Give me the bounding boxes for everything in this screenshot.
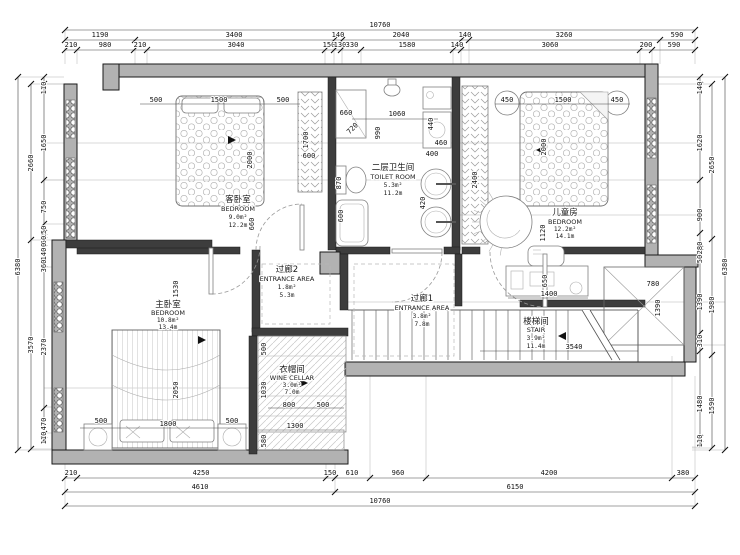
dim-text: 2660: [27, 155, 35, 172]
dim-text: 1400: [541, 290, 558, 298]
dim-text: 200: [640, 41, 653, 49]
dim-text: 750: [40, 201, 48, 214]
room-perimeter: 11.2m: [384, 190, 403, 197]
dim-text: 2040: [393, 31, 410, 39]
room-name-en: STAIR: [527, 326, 546, 334]
floor-plan-canvas: 10760 1190 3400 140 2040 140 3260 590 21…: [0, 0, 740, 555]
dim-text: 10760: [369, 497, 390, 505]
dim-text: 2000: [540, 139, 548, 156]
dim-text: 1390: [654, 300, 662, 317]
dim-text: 590: [671, 31, 684, 39]
dim-text: 50: [696, 255, 704, 263]
dim-text: 330: [346, 41, 359, 49]
staircase: [352, 310, 620, 360]
dim-text: 1580: [399, 41, 416, 49]
wall-kids-bottom: [520, 300, 645, 307]
pillow: [120, 420, 164, 442]
room-area: 3.9m²: [527, 335, 546, 342]
dim-text: 2650: [708, 157, 716, 174]
dim-text: 660: [248, 218, 256, 231]
dim-text: 130: [334, 41, 347, 49]
room-label-hall2: 过廊2 ENTRANCE AREA 1.8m² 5.3m: [260, 264, 315, 299]
dim-text: 500: [317, 401, 330, 409]
window-left-1: [66, 100, 75, 138]
room-label-master: 主卧室 BEDROOM 10.8m² 13.4m: [151, 299, 185, 331]
dim-text: 1700: [302, 132, 310, 149]
cabinet: [423, 87, 451, 109]
dim-text: 960: [392, 469, 405, 477]
dim-text: 110: [696, 435, 704, 448]
dim-text: 140: [40, 248, 48, 261]
dim-text: 4200: [541, 469, 558, 477]
room-name-en: WINE CELLAR: [270, 374, 315, 382]
dim-text: 590: [668, 41, 681, 49]
dim-text: 500: [150, 96, 163, 104]
bed: [520, 92, 608, 206]
dim-text: 660: [340, 109, 353, 117]
dim-text: 6150: [507, 483, 524, 491]
stair-direction-arrow: [558, 332, 566, 340]
wall-top: [118, 64, 658, 77]
dim-text: 3260: [556, 31, 573, 39]
dim-text: 210: [65, 41, 78, 49]
dim-text: 580: [260, 435, 268, 448]
window-right-2: [647, 185, 656, 243]
wall-guest-toilet: [328, 77, 336, 250]
dim-text: 420: [419, 197, 427, 210]
wall-bottom-right: [345, 362, 685, 376]
room-perimeter: 7.0m: [285, 389, 300, 396]
door-arc-guest: [256, 204, 302, 250]
room-name-en: BEDROOM: [221, 205, 255, 213]
dim-text: 500: [277, 96, 290, 104]
room-label-stair: 楼梯间 STAIR 3.9m² 11.4m: [523, 316, 549, 350]
dim-text: 1500: [211, 96, 228, 104]
dim-text: 500: [95, 417, 108, 425]
dim-text: 3400: [226, 31, 243, 39]
dim-text: 2370: [40, 339, 48, 356]
dim-text: 6380: [14, 259, 22, 276]
dim-text: 1500: [555, 96, 572, 104]
dim-text: 150: [324, 469, 337, 477]
dim-text: 600: [337, 210, 345, 223]
dim-text: 280: [696, 242, 704, 255]
dim-text: 3040: [228, 41, 245, 49]
dim-text: 400: [426, 150, 439, 158]
wall-master-top: [66, 240, 212, 248]
dim-text: 1800: [160, 420, 177, 428]
wall-corridor-toilet-b: [444, 247, 460, 254]
room-area: 10.8m²: [157, 317, 179, 324]
round-chair: [480, 196, 532, 248]
dim-text: 460: [435, 139, 448, 147]
room-perimeter: 5.3m: [280, 292, 295, 299]
wall-cloak-top: [252, 328, 348, 336]
door-leaf-toilet: [392, 249, 442, 253]
dim-text: 800: [283, 401, 296, 409]
dimensions-bottom: 210 4250 150 610 960 4200 380 4610 6150 …: [65, 469, 690, 505]
room-name-en: ENTRANCE AREA: [395, 304, 450, 312]
room-name-cn: 过廊2: [276, 264, 298, 275]
dim-text: 210: [134, 41, 147, 49]
window-left-3: [54, 282, 63, 332]
room-name-en: TOILET ROOM: [369, 173, 415, 181]
wall-master-cloak: [249, 336, 257, 454]
wall-hall1-left: [340, 254, 348, 310]
door-leaf-guest: [300, 205, 304, 250]
cloakroom-furniture: [258, 336, 346, 450]
room-area: 5.3m²: [384, 182, 403, 189]
dim-text: 900: [696, 209, 704, 222]
wall-hall1-right: [455, 254, 462, 306]
dim-text: 470: [40, 418, 48, 431]
wall-bottom-left: [52, 450, 348, 464]
room-name-cn: 儿童房: [552, 207, 578, 218]
window-right-1: [647, 98, 656, 158]
wall-shaft-right: [684, 267, 696, 362]
dim-text: 360: [40, 260, 48, 273]
dim-text: 140: [451, 41, 464, 49]
dim-text: 1980: [708, 297, 716, 314]
column-hall: [320, 252, 340, 274]
wall-corridor-kids-a: [462, 247, 480, 254]
room-area: 3.8m²: [413, 313, 432, 320]
room-perimeter: 14.1m: [556, 233, 575, 240]
room-name-cn: 二层卫生间: [372, 162, 415, 173]
room-area: 9.0m²: [229, 214, 248, 221]
room-name-en: BEDROOM: [548, 218, 582, 226]
guest-bedroom-furniture: [176, 92, 322, 206]
dim-text: 500: [260, 343, 268, 356]
room-name-cn: 过廊1: [411, 293, 433, 304]
room-name-en: ENTRANCE AREA: [260, 275, 315, 283]
room-name-cn: 客卧室: [225, 194, 251, 205]
dim-text: 1530: [172, 281, 180, 298]
room-label-kids: 儿童房 BEDROOM 12.2m² 14.1m: [548, 207, 582, 240]
dim-text: 10760: [369, 21, 390, 29]
dimensions-right: 6380 2650 1980 1590 140 1620 900 280 50 …: [696, 82, 729, 448]
dim-text: 2000: [246, 152, 254, 169]
wall-hall2-master: [252, 250, 260, 332]
dim-text: 140: [332, 31, 345, 39]
dim-text: 1120: [539, 225, 547, 242]
dim-text: 610: [346, 469, 359, 477]
low-cabinet: [258, 430, 344, 450]
dim-text: 140: [696, 82, 704, 95]
dim-text: 650: [541, 275, 549, 288]
pillow: [224, 98, 260, 113]
dim-text: 780: [647, 280, 660, 288]
dim-text: 1060: [389, 110, 406, 118]
room-perimeter: 12.2m: [229, 222, 248, 229]
wall-toilet-kids: [452, 77, 460, 250]
window-left-2: [66, 158, 75, 238]
room-area: 12.2m²: [554, 226, 576, 233]
dim-text: 3540: [566, 343, 583, 351]
dim-text: 440: [427, 118, 435, 131]
dim-text: 110: [40, 432, 48, 445]
room-area: 3.0m²: [283, 382, 302, 389]
wash-basin: [384, 84, 400, 96]
wall-corridor-toilet-a: [336, 247, 390, 254]
dim-text: 450: [611, 96, 624, 104]
dim-text: 600: [303, 152, 316, 160]
room-label-toilet: 二层卫生间 TOILET ROOM 5.3m² 11.2m: [369, 162, 415, 197]
dim-text: 1620: [696, 135, 704, 152]
dim-text: 450: [501, 96, 514, 104]
room-label-hall1: 过廊1 ENTRANCE AREA 3.8m² 7.8m: [395, 293, 450, 328]
dim-text: 500: [226, 417, 239, 425]
dim-text: 110: [40, 82, 48, 95]
dim-text: 4610: [192, 483, 209, 491]
pillow: [170, 420, 214, 442]
dim-text: 870: [335, 177, 343, 190]
dim-text: 1190: [92, 31, 109, 39]
door-leaf-master: [209, 248, 213, 294]
dimensions-top: 10760 1190 3400 140 2040 140 3260 590 21…: [65, 21, 684, 49]
dim-text: 3060: [542, 41, 559, 49]
wall-shaft-top: [645, 255, 698, 267]
floor-plan-drawing: 10760 1190 3400 140 2040 140 3260 590 21…: [0, 0, 740, 555]
dim-text: 1030: [260, 382, 268, 399]
window-left-4: [54, 388, 63, 432]
dim-text: 4250: [193, 469, 210, 477]
dim-text: 140: [459, 31, 472, 39]
toilet-bowl: [346, 167, 366, 193]
dim-text: 380: [677, 469, 690, 477]
room-perimeter: 7.8m: [415, 321, 430, 328]
wall-top-left-stub: [103, 64, 119, 90]
room-name-en: BEDROOM: [151, 309, 185, 317]
dim-text: 2050: [172, 382, 180, 399]
dim-text: 210: [65, 469, 78, 477]
dim-text: 310: [696, 335, 704, 348]
dim-text: 1480: [696, 396, 704, 413]
dim-text: 1390: [696, 294, 704, 311]
dim-text: 1650: [40, 135, 48, 152]
dim-text: 980: [99, 41, 112, 49]
master-bedroom-furniture: [84, 330, 246, 450]
basin-tap: [388, 79, 396, 85]
dim-text: 990: [374, 127, 382, 140]
room-perimeter: 13.4m: [159, 324, 178, 331]
dim-text: 2400: [471, 172, 479, 189]
dim-text: 1590: [708, 398, 716, 415]
dim-text: 6380: [721, 259, 729, 276]
room-perimeter: 11.4m: [527, 343, 546, 350]
dim-text: 1300: [287, 422, 304, 430]
dim-text: 3570: [27, 337, 35, 354]
room-area: 1.8m²: [278, 284, 297, 291]
